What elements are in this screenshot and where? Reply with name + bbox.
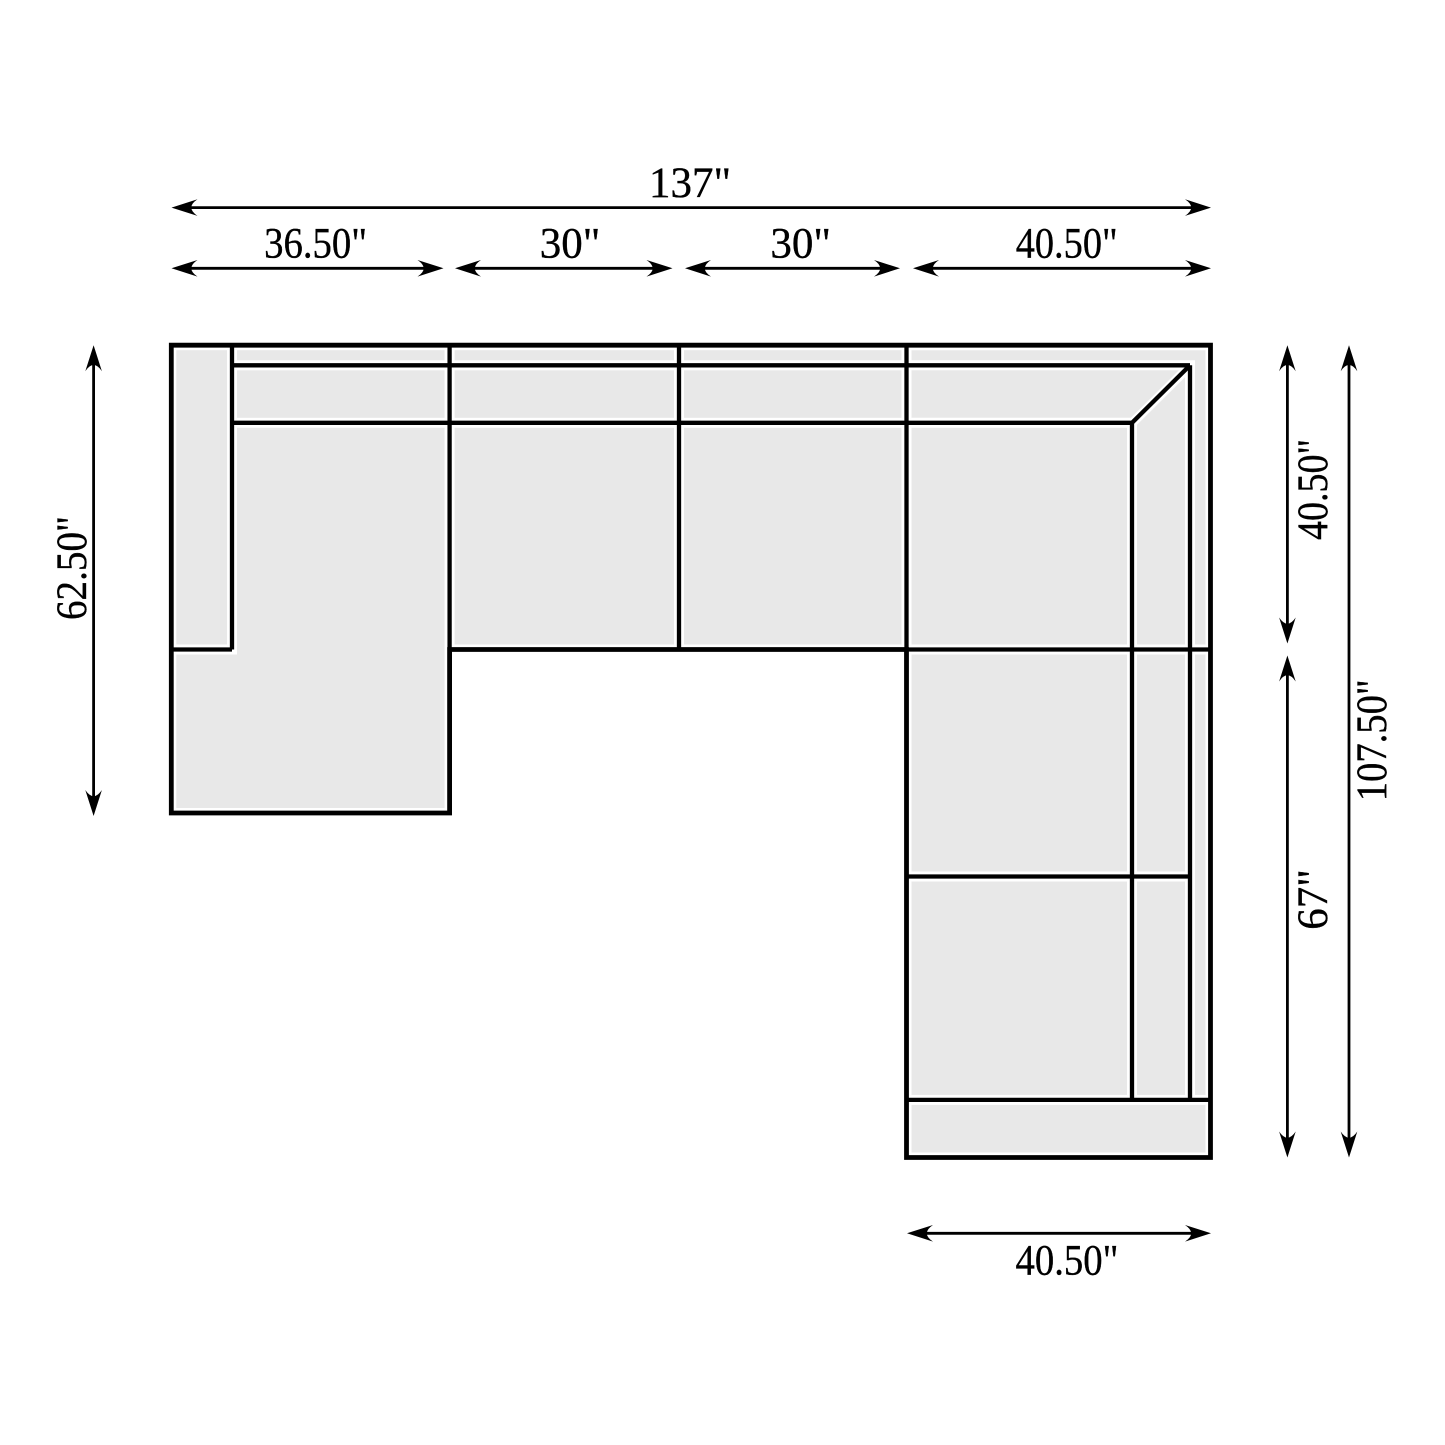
svg-text:107.50": 107.50" <box>1349 679 1396 801</box>
svg-text:30": 30" <box>540 221 601 268</box>
svg-text:62.50": 62.50" <box>49 516 96 620</box>
svg-text:36.50": 36.50" <box>264 221 367 268</box>
svg-text:40.50": 40.50" <box>1290 439 1337 540</box>
svg-text:137": 137" <box>649 160 731 207</box>
svg-text:40.50": 40.50" <box>1016 221 1118 268</box>
svg-text:67": 67" <box>1290 869 1337 930</box>
svg-text:30": 30" <box>770 221 831 268</box>
svg-text:40.50": 40.50" <box>1016 1237 1119 1284</box>
